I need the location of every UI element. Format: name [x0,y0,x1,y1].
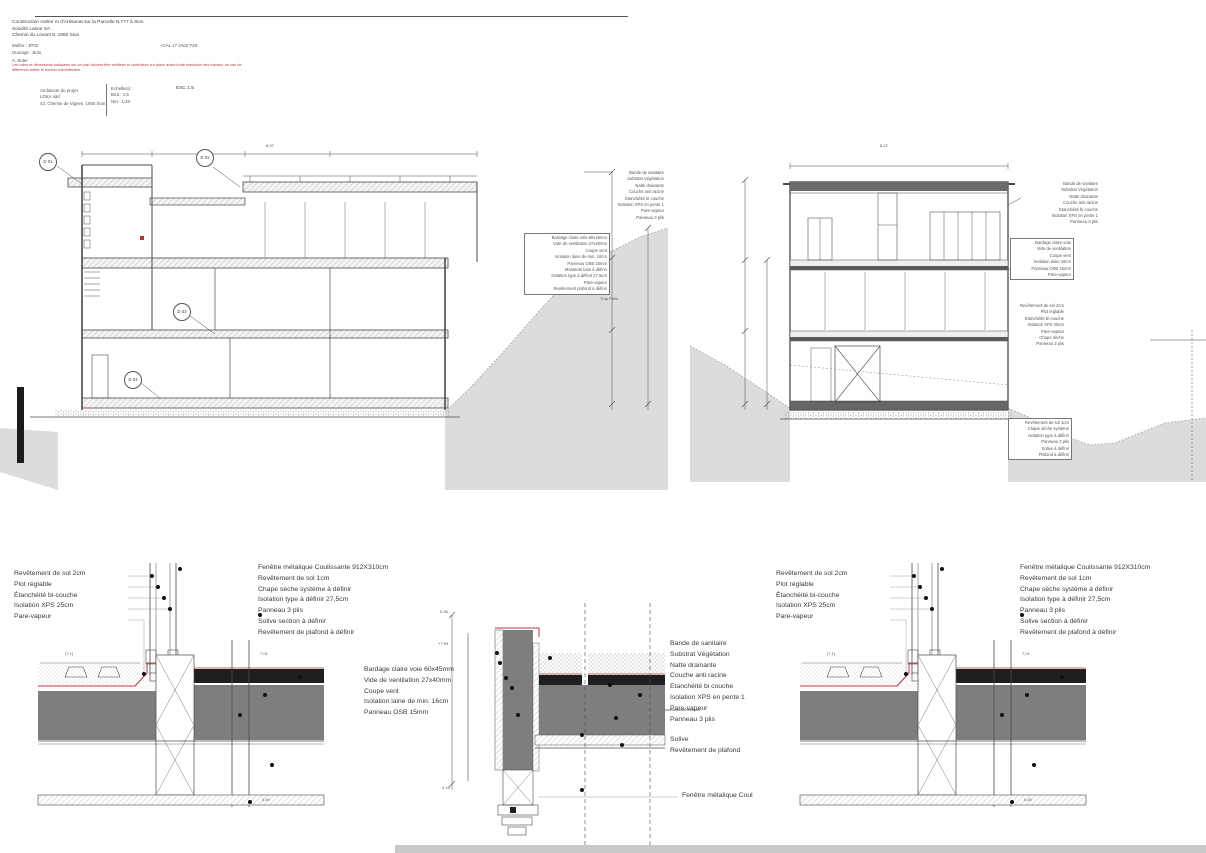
right-section-wall-annotation: Bardage claire voieVide de ventilationCo… [1010,238,1074,280]
legend-item: Panneau OSB 15mm [364,708,492,719]
detail-floor-right: Revêtement de sol 2cmPlot réglableÉtanch… [772,555,1206,825]
legend-item: Chape sèche système à définir [1020,585,1206,596]
legend-item: Plot réglable [14,580,154,591]
left-section-top-dim: 8,97 [266,143,274,148]
red-note: Les cotes et dimensions indiquées sur ce… [12,63,241,73]
legend-item: Fenêtre métalique Coulissante 912X310cm [1020,563,1206,574]
bottom-scale-bar [395,845,1206,853]
wall-legend: Bardage claire voie 60x45mmVide de venti… [364,665,492,719]
dim-a1: (7,1) [827,651,835,656]
legend-item: Étanchéité bi-couche [776,591,916,602]
annotation-line: Pare-vapeur [1013,272,1071,278]
dim-a3: 0,49 [262,797,270,802]
window-label: Fenêtre métalique Coul [682,791,753,802]
detail-marker-d01: D 01 [39,153,57,171]
scale-esc: ESC 1:5 [176,86,194,93]
left-section-wall-annotation: Bardage claire voie 60x45mmVide de venti… [524,233,610,295]
project-title: Construction Atelier et d'Artisanat sur … [12,20,144,27]
right-section-roof-annotation: Bande de sanitaireSubstrat VégétationNat… [1012,181,1098,226]
structure-label: Ouvrage : Bois [12,50,41,56]
title-block: Construction Atelier et d'Artisanat sur … [12,20,144,40]
legend-item: Chape sèche système à définir [258,585,463,596]
detail-roof-middle: 0,38 +7,99 0,16 Bardage claire voie 60x4… [360,595,800,853]
left-section-note: Trop Plein [600,296,618,301]
dim-a2: 7,01 [260,651,268,656]
floor-legend-left: Revêtement de sol 2cmPlot réglableÉtanch… [14,569,154,623]
left-section-roof-annotation: Bande de sanitaireSubstrat VégétationNat… [528,170,664,221]
floor-legend-right: Fenêtre métalique Coulissante 912X310cmR… [1020,563,1206,639]
right-section-top-dim: 8,22 [880,143,888,148]
scale-divider [106,84,107,116]
detail-marker-d02: D 02 [196,149,214,167]
legend-item: Étanchéité bi-couche [14,591,154,602]
project-address: Chemin du Levant 8, 1950 Sion [12,33,144,40]
annotation-line: Panneau 3 plis [528,215,664,221]
detail-marker-d03: D 03 [173,303,191,321]
legend-item: Plot réglable [776,580,916,591]
legend-item: Revêtement de plafond à définir [1020,628,1206,639]
red-note-line: différence aviser le bureau d'architectu… [12,68,241,73]
annotation-line: Revêtement plafond à définir [527,286,607,292]
legend-item: Isolation XPS 25cm [776,601,916,612]
drawing-sheet: Construction Atelier et d'Artisanat sur … [0,0,1206,853]
legend-item: Fenêtre métalique Coulissante 912X310cm [258,563,463,574]
architect-block: Architecte du projet LOKA sàrl 43, Chemi… [40,88,105,107]
legend-item: Revêtement de sol 1cm [1020,574,1206,585]
legend-item: Revêtement de sol 1cm [258,574,463,585]
right-section-drawing [685,150,1206,490]
floor-legend-left: Revêtement de sol 2cmPlot réglableÉtanch… [776,569,916,623]
annotation-line: Panneau 3 plis [1002,341,1064,347]
dim-b2: +7,99 [438,641,448,646]
legend-item: Coupe vent [364,687,492,698]
legend-item: Isolation laine de min. 16cm [364,697,492,708]
dim-b3: 0,16 [442,785,450,790]
legend-item: Panneau 3 plis [1020,606,1206,617]
legend-item: Vide de ventilation 27x40mm [364,676,492,687]
right-section-base-annotation: Revêtement de sol 1cmChape sèche système… [1008,418,1072,460]
scale-block: Echelle(s) : Brut : 1:5 Net : 1:20 [111,86,133,105]
dim-a3: 0,49 [1024,797,1032,802]
dim-b1: 0,38 [440,609,448,614]
legend-item: Isolation XPS 25cm [14,601,154,612]
title-rule [35,16,628,17]
legend-item: Bardage claire voie 60x45mm [364,665,492,676]
legend-item: Pare-vapeur [776,612,916,623]
client-label: Maître : JP02 [12,43,38,49]
legend-item: Revêtement de sol 2cm [776,569,916,580]
dim-a1: (7,1) [65,651,73,656]
legend-item: Isolation type à définir 27,5cm [1020,595,1206,606]
architect-address: 43, Chemin de Vignes, 1950 Sion [40,101,105,107]
legend-item: Solive section à définir [1020,617,1206,628]
date-ref: +CAL 17 JA02 F28 [160,43,197,49]
right-section-floor-annotation: Revêtement de sol 2cmPlot réglableÉtanch… [1002,303,1064,348]
legend-item: Revêtement de sol 2cm [14,569,154,580]
annotation-line: Panneau 3 plis [1012,219,1098,225]
dim-a2: 7,01 [1022,651,1030,656]
legend-item: Pare-vapeur [14,612,154,623]
annotation-line: Plafond à définir [1011,452,1069,458]
scale-net: Net : 1:20 [111,99,133,105]
detail-marker-d04: D 04 [124,371,142,389]
